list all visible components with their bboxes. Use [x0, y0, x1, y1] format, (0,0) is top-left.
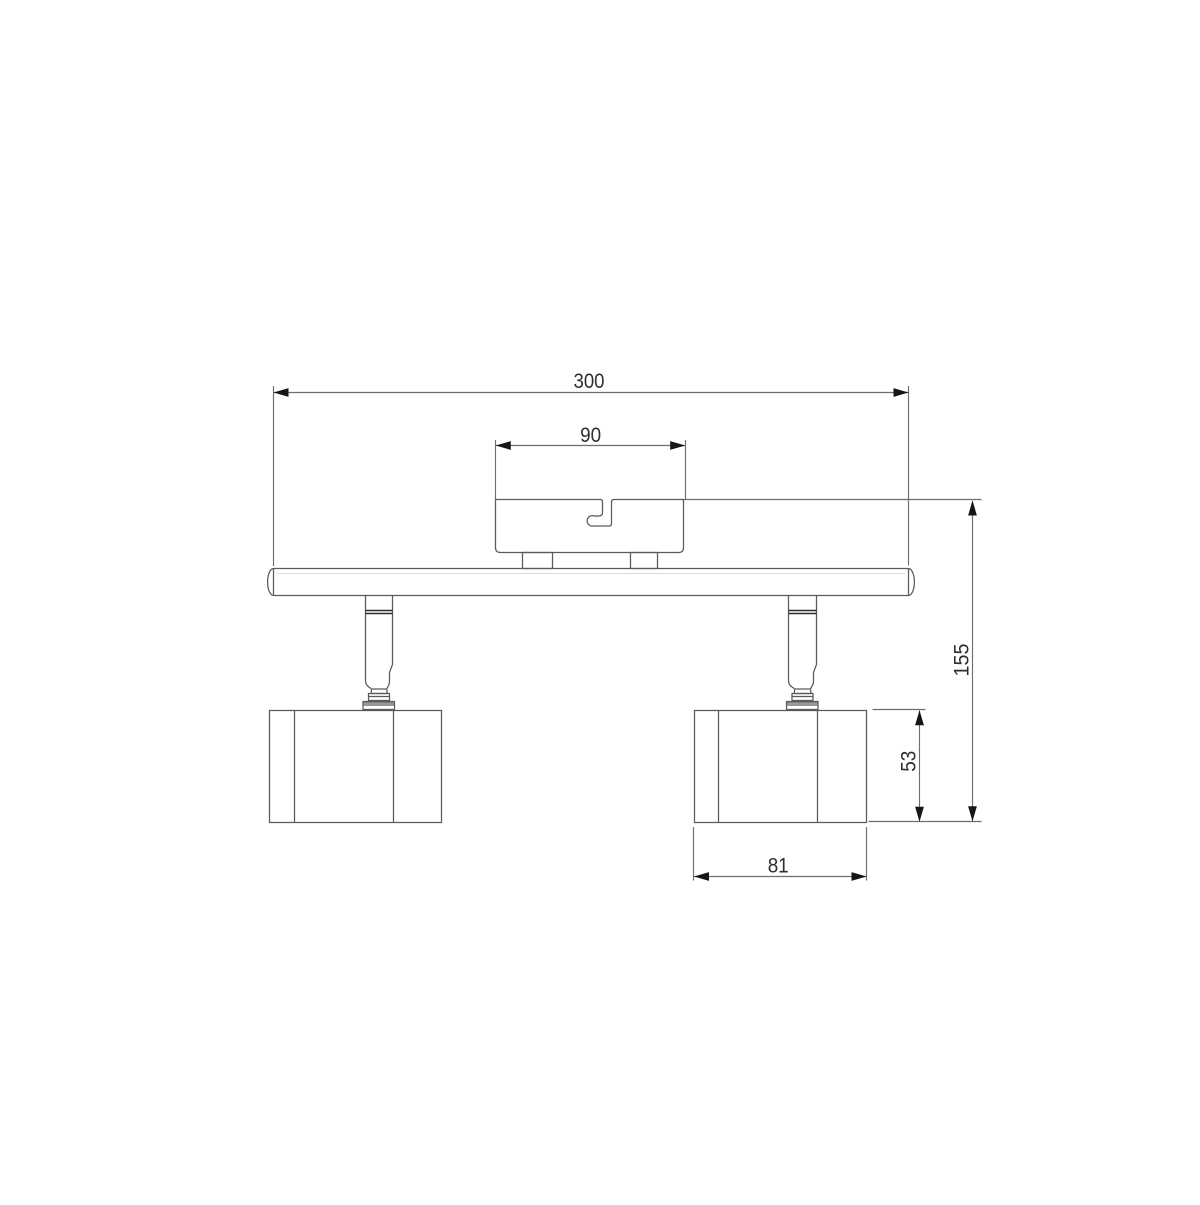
svg-text:155: 155 — [950, 644, 974, 677]
svg-text:53: 53 — [897, 751, 921, 772]
svg-text:90: 90 — [580, 423, 601, 447]
svg-text:300: 300 — [574, 369, 605, 393]
svg-text:81: 81 — [768, 853, 789, 877]
